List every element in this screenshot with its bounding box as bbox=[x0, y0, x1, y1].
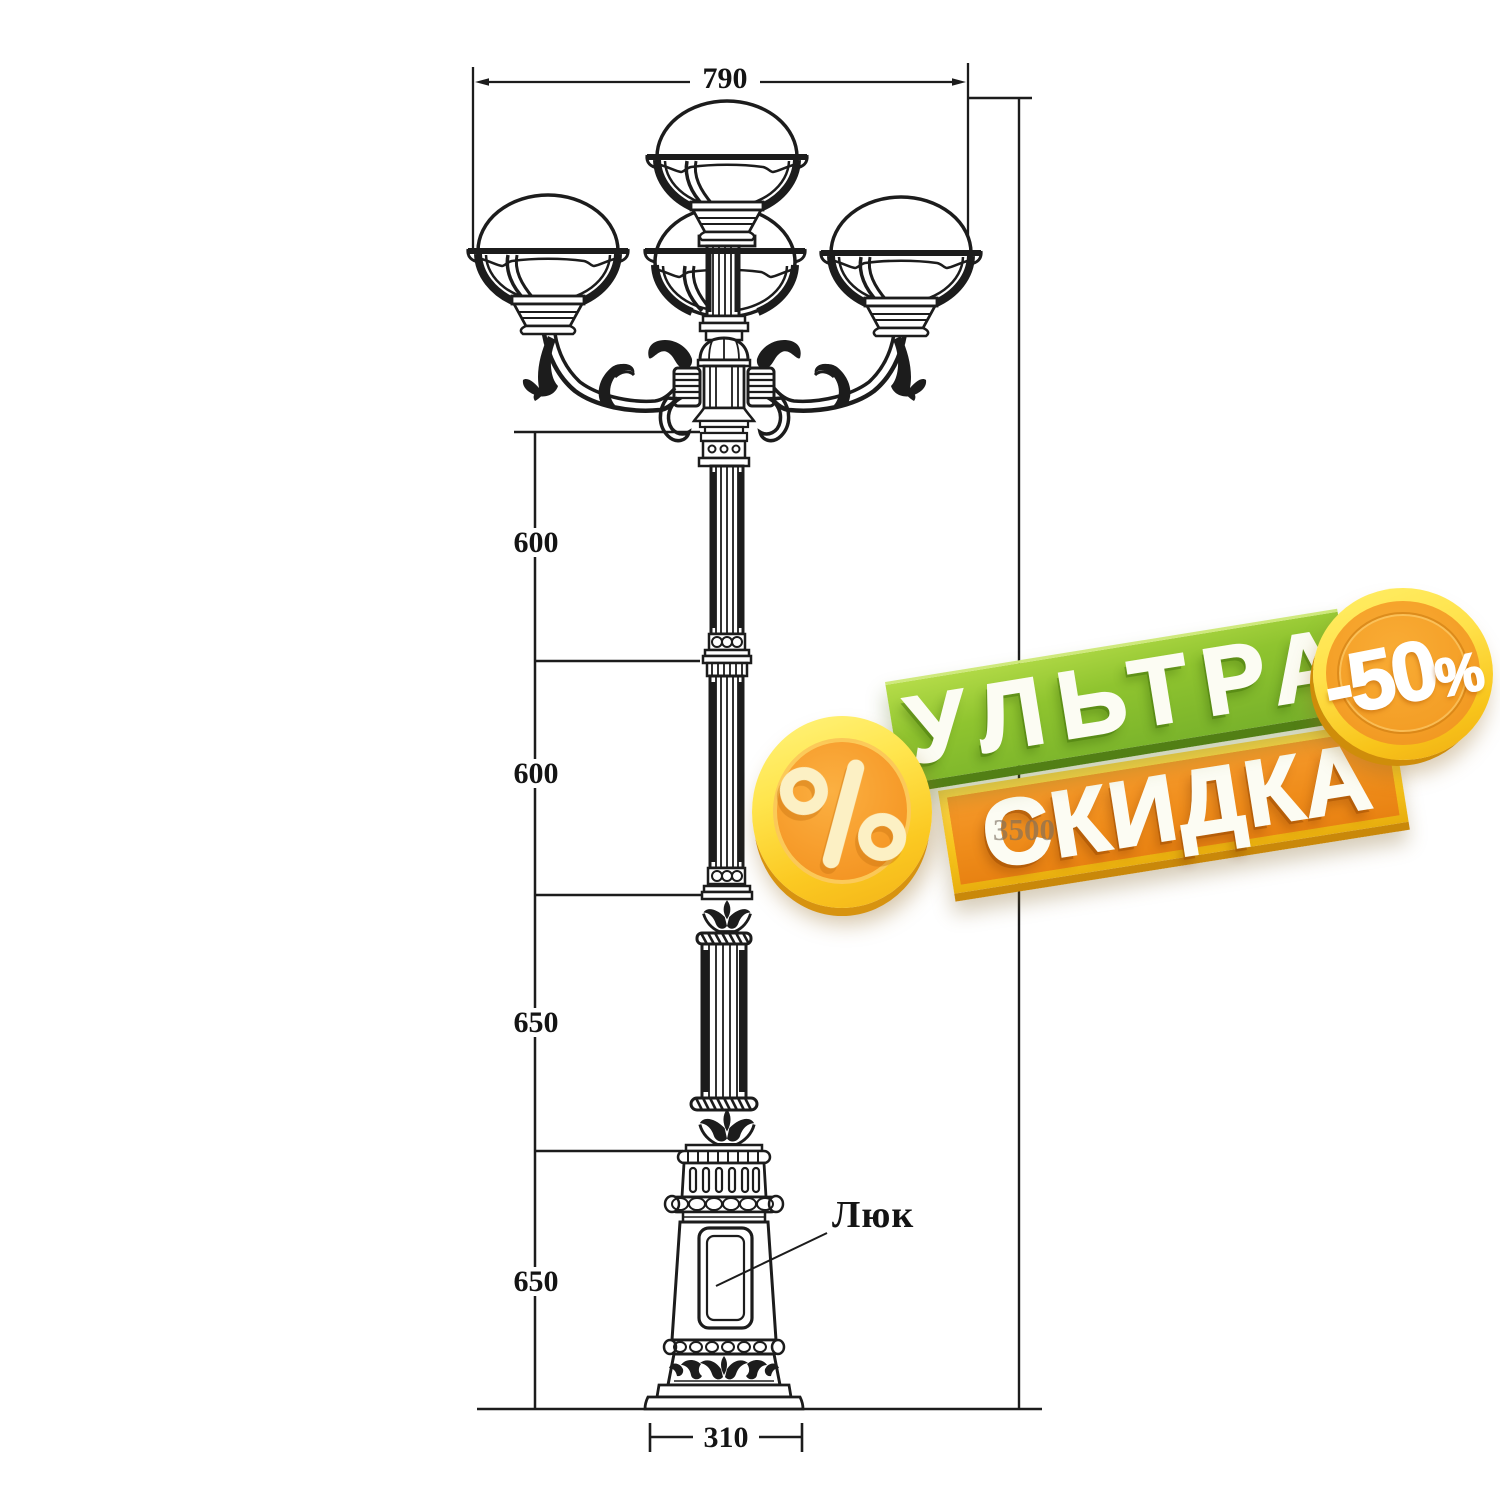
svg-text:600: 600 bbox=[514, 757, 559, 790]
svg-text:310: 310 bbox=[704, 1421, 749, 1454]
svg-text:Люк: Люк bbox=[832, 1194, 914, 1236]
svg-text:650: 650 bbox=[514, 1006, 559, 1039]
svg-text:650: 650 bbox=[514, 1265, 559, 1298]
svg-text:600: 600 bbox=[514, 526, 559, 559]
svg-text:790: 790 bbox=[703, 62, 748, 95]
